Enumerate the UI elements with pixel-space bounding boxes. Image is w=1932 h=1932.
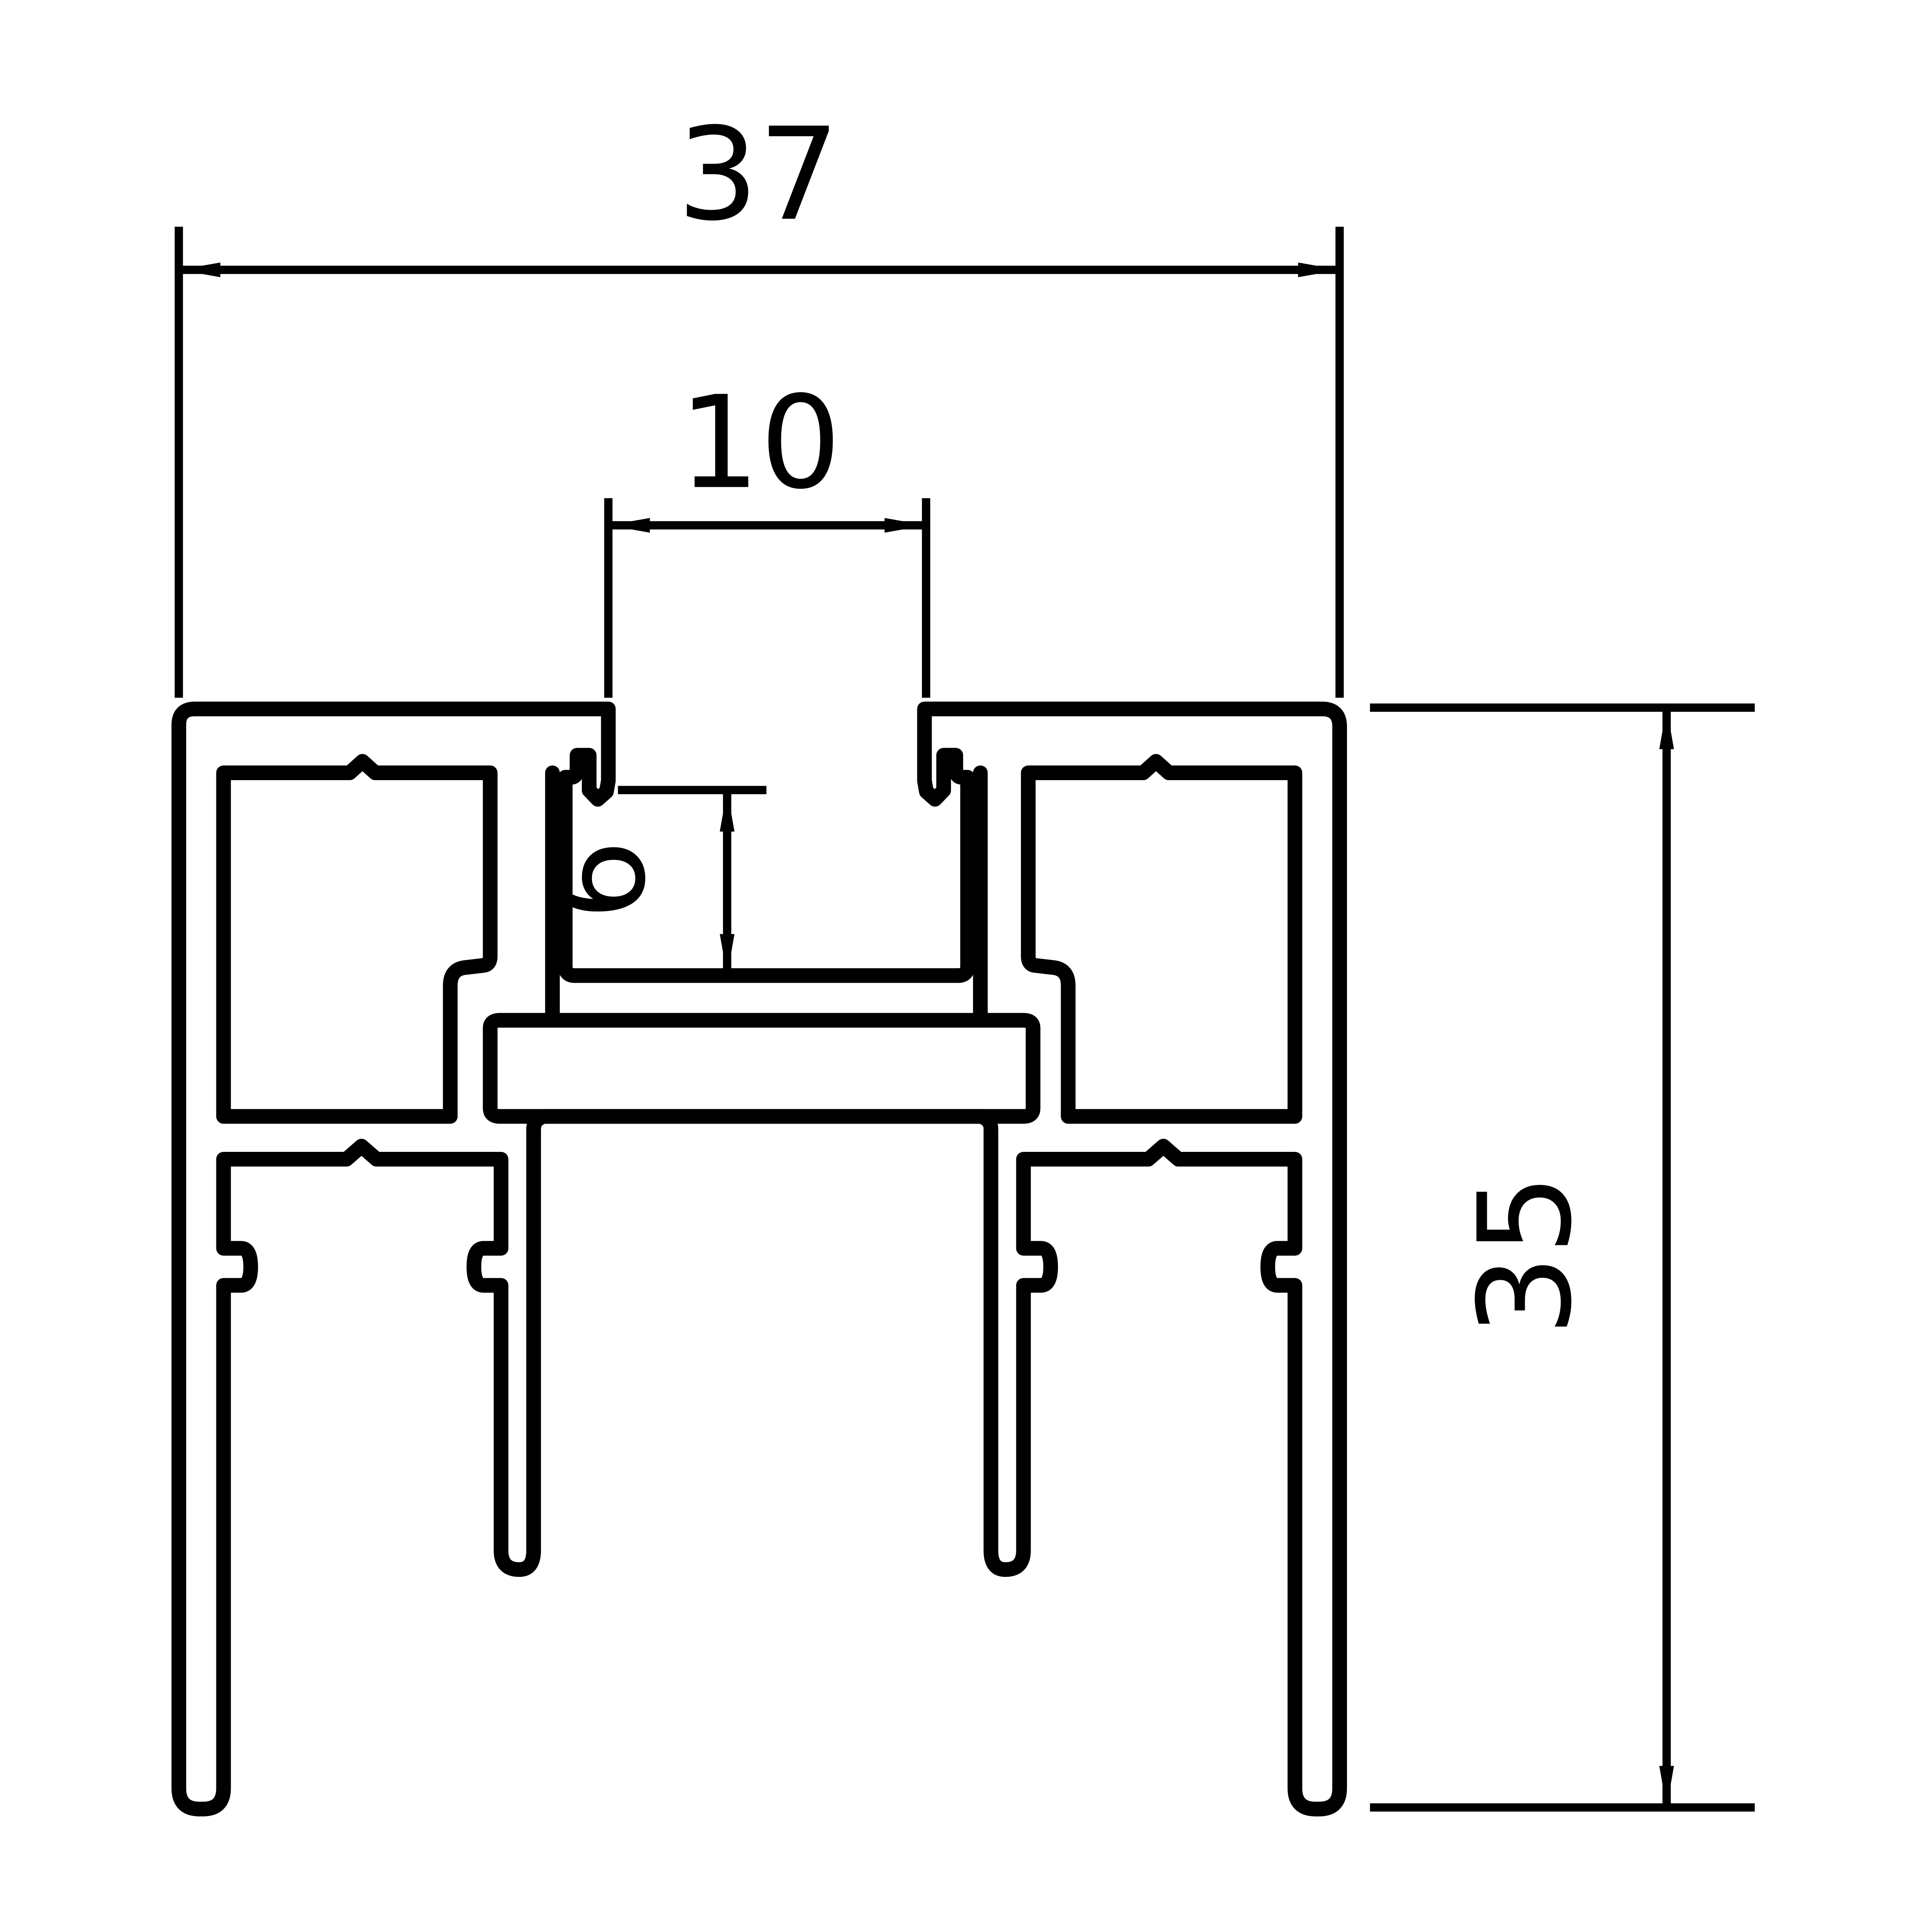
left-chamber-cavity xyxy=(224,761,490,1116)
arrowhead-up xyxy=(720,790,735,832)
center-flat-cavity xyxy=(490,1020,1033,1116)
profile-geometry xyxy=(179,709,1340,1809)
arrowhead-left xyxy=(608,518,650,532)
arrowhead-left xyxy=(179,262,220,277)
dim-label-groove-depth: 6 xyxy=(525,839,673,920)
dim-label-slot-width: 10 xyxy=(679,368,842,517)
right-chamber-cavity xyxy=(1028,761,1295,1116)
arrowhead-top xyxy=(1659,707,1674,749)
dimension-overall-height: 35 xyxy=(1370,707,1755,1807)
profile-outer-contour xyxy=(179,709,1340,1809)
dim-label-overall-width: 37 xyxy=(677,100,840,249)
arrowhead-right xyxy=(1298,262,1340,277)
drawing-canvas: 37 10 6 35 xyxy=(0,0,1932,1932)
arrowhead-bottom xyxy=(1659,1766,1674,1807)
dim-label-overall-height: 35 xyxy=(1451,1174,1600,1337)
dimension-slot-width: 10 xyxy=(608,368,926,697)
profile-drawing: 37 10 6 35 xyxy=(0,0,1932,1932)
arrowhead-right xyxy=(884,518,926,532)
